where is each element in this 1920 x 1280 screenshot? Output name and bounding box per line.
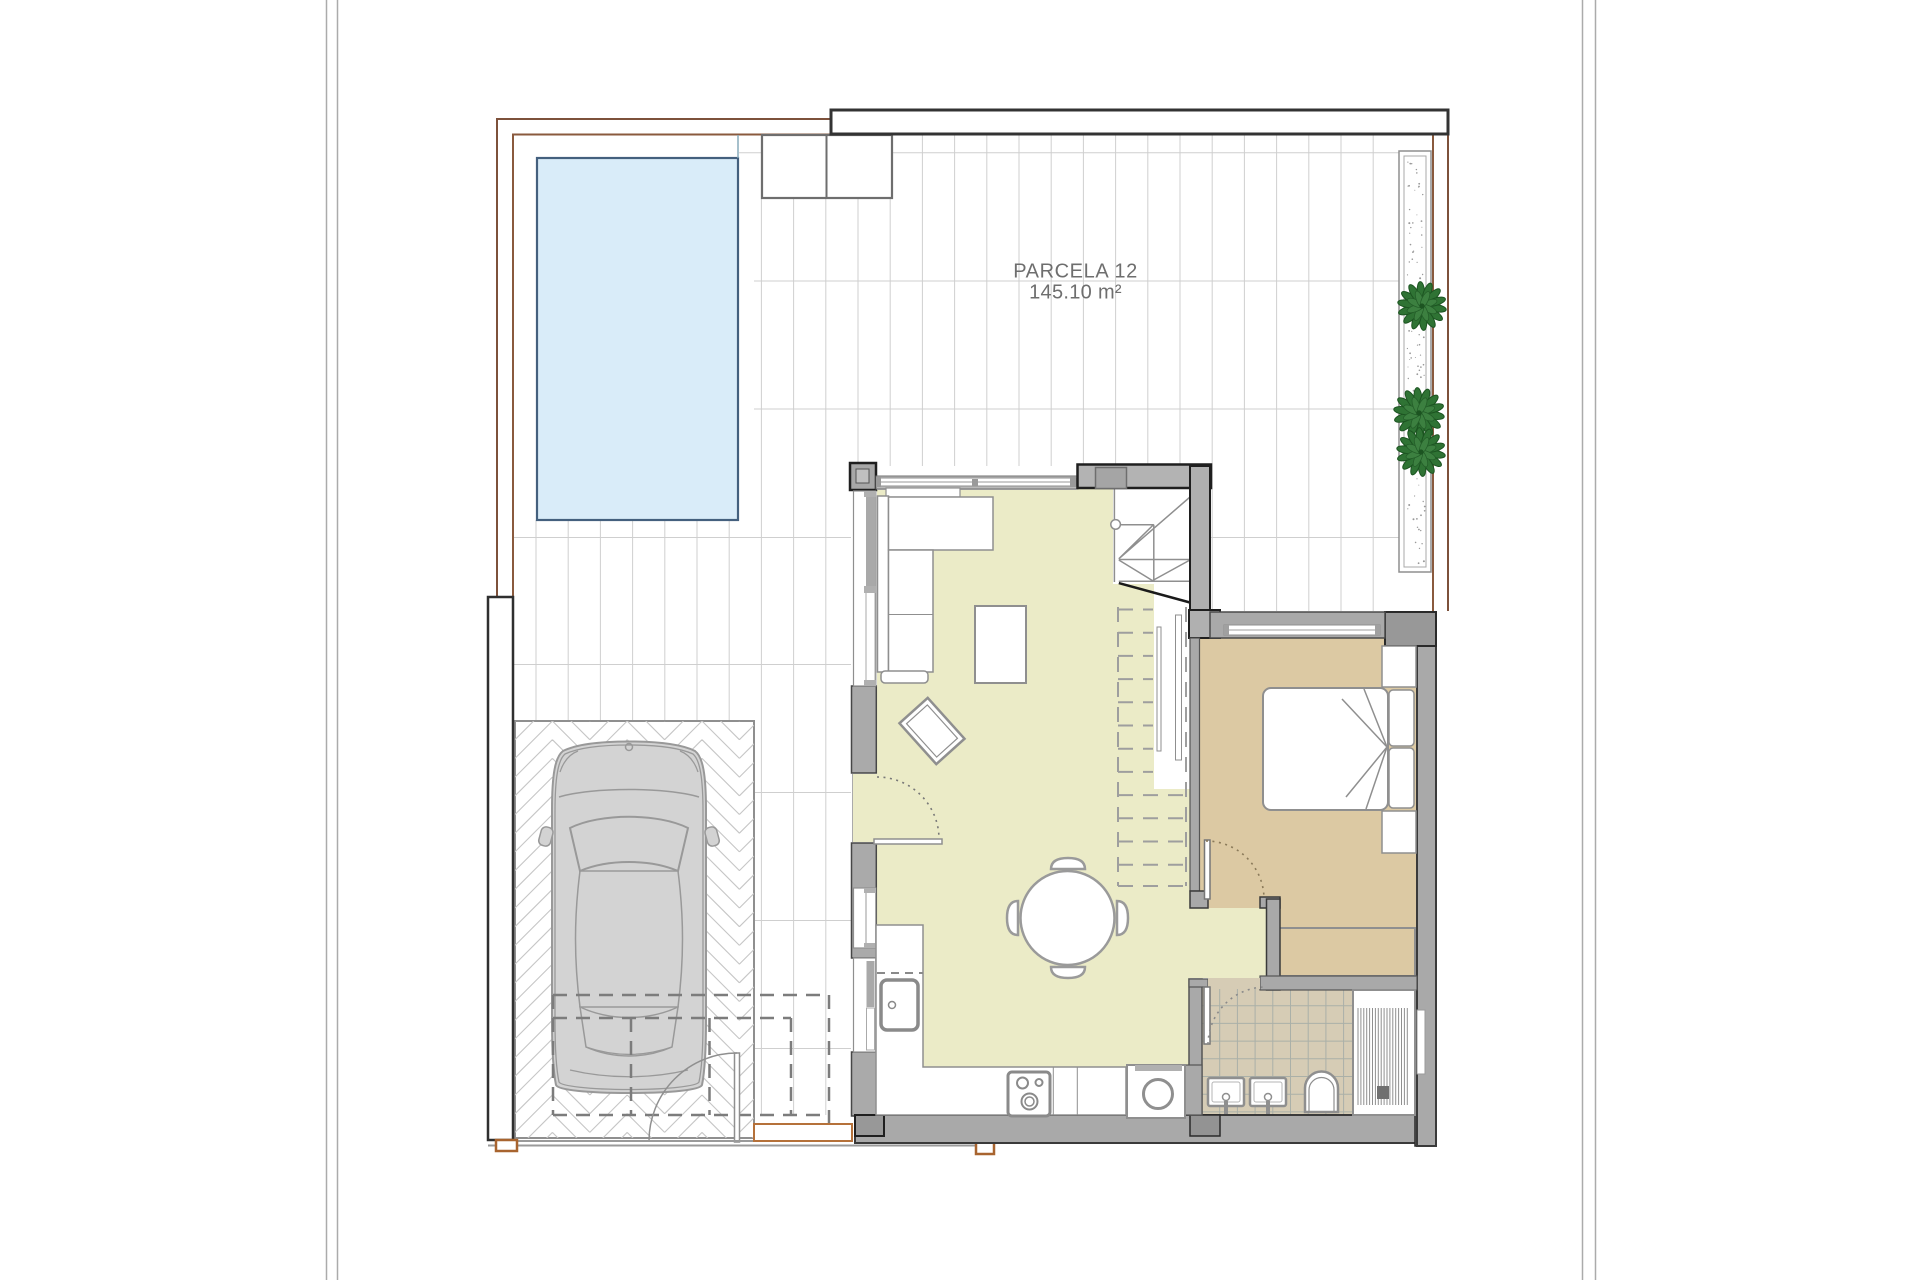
- svg-text:PARCELA 12: PARCELA 12: [1013, 261, 1138, 283]
- svg-text:145.10 m²: 145.10 m²: [1029, 282, 1122, 304]
